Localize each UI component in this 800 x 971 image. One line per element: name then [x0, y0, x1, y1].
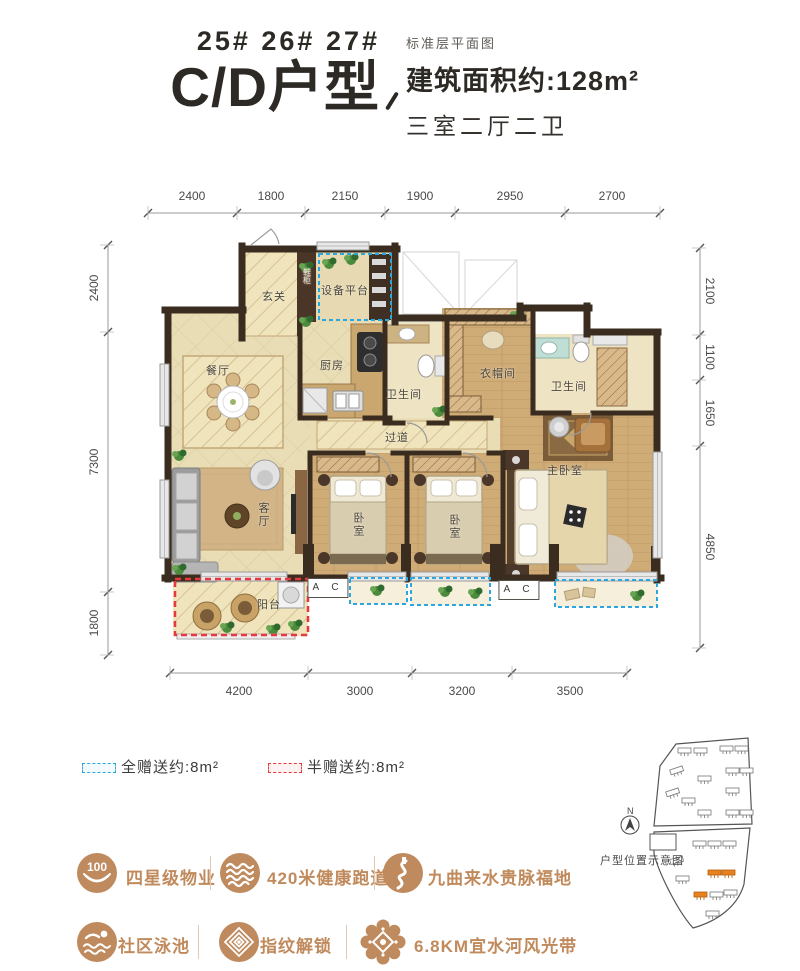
- dim-right-1: 2100: [703, 269, 717, 313]
- title-slash-mark: [385, 91, 399, 110]
- room-label-dining: 餐厅: [206, 362, 230, 378]
- room-label-entry: 玄关: [262, 288, 286, 304]
- dim-top-6: 2700: [582, 189, 642, 203]
- north-label: N: [627, 806, 634, 816]
- north-arrow: [621, 816, 639, 834]
- floor-plan-note: 标准层平面图: [406, 33, 639, 52]
- dim-top-4: 1900: [390, 189, 450, 203]
- lounge-chair: [250, 460, 280, 490]
- feature-label-6: 6.8KM宜水河风光带: [414, 932, 577, 957]
- feature-label-5: 指纹解锁: [260, 932, 332, 957]
- dim-line-top: [140, 206, 670, 222]
- room-label-bedroom1: 卧室: [350, 512, 366, 538]
- page-title: C/D户型: [168, 59, 380, 115]
- rooms-summary: 三室二厅二卫: [406, 107, 639, 141]
- area-text: 建筑面积约:128m²: [406, 59, 639, 98]
- dim-bottom-2: 3000: [330, 684, 390, 698]
- dim-top-2: 1800: [241, 189, 301, 203]
- room-label-living: 客厅: [255, 502, 271, 528]
- feature-divider: [346, 925, 347, 959]
- room-label-bath2: 卫生间: [551, 378, 587, 394]
- dim-top-1: 2400: [162, 189, 222, 203]
- dim-top-5: 2950: [480, 189, 540, 203]
- full-gift-label: 全赠送约:8m²: [121, 756, 219, 777]
- floor-plan-drawing: [145, 228, 665, 663]
- half-gift-label: 半赠送约:8m²: [307, 756, 405, 777]
- site-map-caption: 户型位置示意图: [600, 852, 684, 868]
- coffee-table: [225, 504, 249, 528]
- feature-divider: [198, 925, 199, 959]
- dim-right-2: 1100: [703, 335, 717, 379]
- svg-text:100: 100: [87, 860, 107, 874]
- winding-river-icon: [382, 852, 424, 894]
- room-label-shoe-cabinet: 鞋柜: [302, 268, 313, 284]
- dim-line-left: [100, 240, 116, 660]
- feature-label-4: 社区泳池: [118, 932, 190, 957]
- dim-left-2: 7300: [87, 440, 101, 484]
- full-gift-swatch: [82, 763, 116, 773]
- feature-divider: [210, 856, 211, 890]
- ac-unit-label-1: A C: [307, 578, 348, 598]
- room-label-cloakroom: 衣帽间: [480, 365, 516, 381]
- room-label-balcony: 阳台: [257, 596, 281, 612]
- feature-label-1: 四星级物业: [126, 864, 216, 889]
- swimming-pool-icon: [76, 921, 118, 963]
- room-label-master-bedroom: 主卧室: [547, 462, 583, 478]
- feature-label-3: 九曲来水贵脉福地: [428, 864, 572, 889]
- room-label-bedroom2: 卧室: [446, 514, 462, 540]
- feature-label-2: 420米健康跑道: [267, 864, 388, 889]
- building-numbers: 25# 26# 27#: [168, 26, 380, 57]
- header-right: 标准层平面图 建筑面积约:128m² 三室二厅二卫: [406, 33, 639, 141]
- dim-bottom-3: 3200: [432, 684, 492, 698]
- dim-bottom-4: 3500: [540, 684, 600, 698]
- property-rating-icon: 100: [76, 852, 118, 894]
- equipment-rack: [369, 254, 391, 320]
- room-label-bath1: 卫生间: [386, 386, 422, 402]
- half-gift-swatch: [268, 763, 302, 773]
- site-location-map: N 户型位置示意图: [598, 736, 798, 966]
- common-corridor-outline: [403, 252, 517, 314]
- dim-top-3: 2150: [315, 189, 375, 203]
- scenic-belt-icon: [360, 919, 406, 965]
- floor-plan: 玄关 鞋柜 设备平台 餐厅 厨房 卫生间 衣帽间 卫生间 过道 客厅 卧室 卧室…: [145, 228, 665, 663]
- room-label-hallway: 过道: [385, 429, 409, 445]
- running-track-icon: [219, 852, 261, 894]
- dim-left-3: 1800: [87, 601, 101, 645]
- feature-divider: [374, 856, 375, 890]
- ac-unit-label-2: A C: [498, 580, 539, 600]
- dim-line-bottom: [140, 666, 670, 682]
- dim-bottom-1: 4200: [209, 684, 269, 698]
- header-left: 25# 26# 27# C/D户型: [168, 26, 380, 115]
- dim-left-1: 2400: [87, 266, 101, 310]
- room-label-equipment-platform: 设备平台: [321, 282, 369, 298]
- dim-right-4: 4850: [703, 525, 717, 569]
- fingerprint-lock-icon: [218, 921, 260, 963]
- dim-right-3: 1650: [703, 391, 717, 435]
- room-label-kitchen: 厨房: [320, 357, 344, 373]
- site-map-drawing: [598, 736, 798, 966]
